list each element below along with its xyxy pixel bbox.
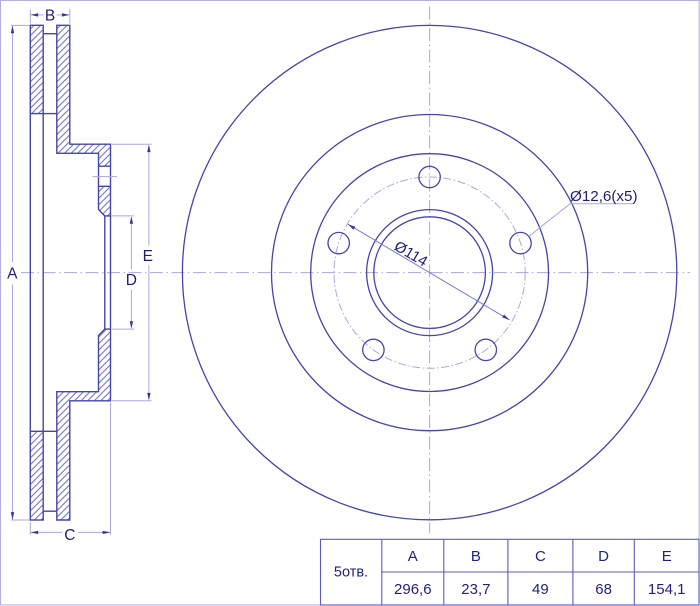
svg-text:C: C <box>64 527 75 544</box>
svg-text:B: B <box>45 7 55 24</box>
svg-text:C: C <box>535 548 546 565</box>
svg-text:D: D <box>598 548 609 565</box>
svg-text:154,1: 154,1 <box>648 581 686 598</box>
svg-text:A: A <box>408 548 418 565</box>
svg-text:E: E <box>143 248 153 265</box>
svg-text:B: B <box>471 548 481 565</box>
svg-text:296,6: 296,6 <box>394 581 432 598</box>
svg-text:E: E <box>662 548 672 565</box>
svg-text:A: A <box>7 266 18 283</box>
svg-text:D: D <box>126 272 137 289</box>
svg-text:Ø114: Ø114 <box>391 238 430 271</box>
svg-text:49: 49 <box>532 581 549 598</box>
svg-text:Ø12,6(x5): Ø12,6(x5) <box>570 188 638 205</box>
svg-text:5отв.: 5отв. <box>334 565 368 581</box>
svg-text:23,7: 23,7 <box>461 581 490 598</box>
svg-text:68: 68 <box>595 581 612 598</box>
